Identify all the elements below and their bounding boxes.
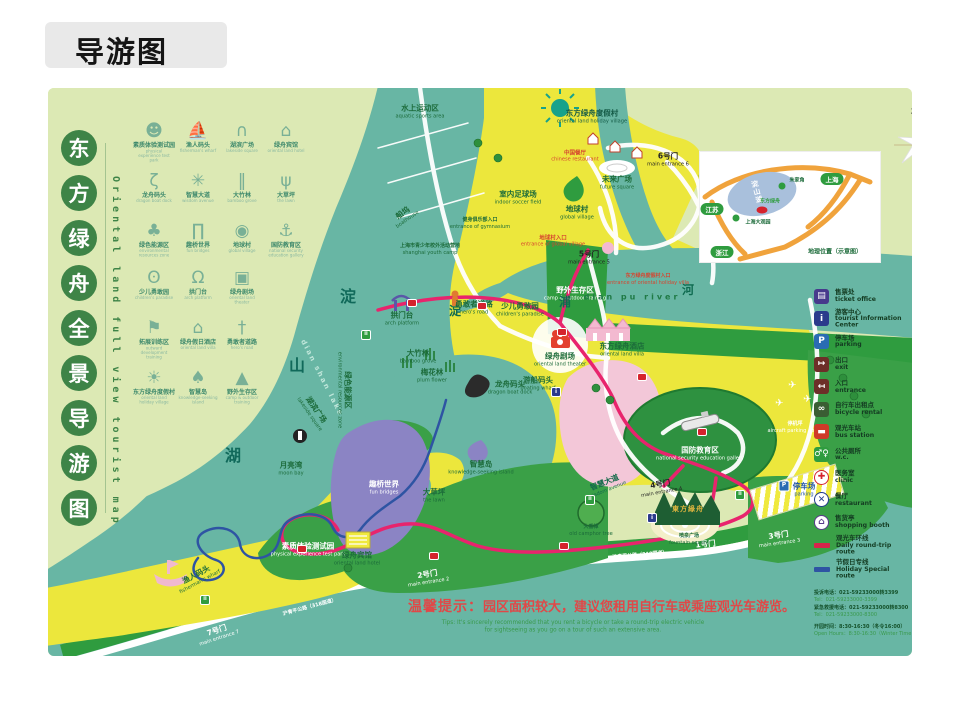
legend-item-text: 出口 exit [835,357,849,371]
attraction-item: ✳ 智慧大道 wisdom avenue [176,170,220,220]
attraction-item: ⌂ 绿舟假日酒店 oriental land villa [176,317,220,367]
title-char: 导 [61,400,97,436]
label-moonbay: 月亮湾moon bay [277,462,304,477]
attraction-icon: ⌂ [176,317,220,339]
inset-label-zhujiajiao: 朱家角 [789,177,804,184]
complaint-phone-en: Tel：021-59233000-3399 [814,597,910,605]
legend-item-en: restaurant [835,500,872,506]
inset-dot-oriental-land [757,207,768,214]
label-bamboo: 大竹林bamboo grove [398,350,438,365]
inset-dot-guanyuan [733,215,740,222]
attraction-item: ψ 大草坪 the lawn [264,170,308,220]
attraction-name: 拱门台 [176,289,220,296]
inset-region-shanghai: 上海 [821,173,844,185]
route-text: 节假日专线 Holiday Special route [836,559,910,579]
hotel-icon [346,532,370,548]
label-river-en: dian pu river [584,292,681,301]
label-defense: 国防教育区national security education gallery [652,447,748,462]
attraction-name: 大竹林 [220,192,264,199]
attraction-name: 国防教育区 [264,242,308,249]
attraction-item: ⛵ 渔人码头 fisherman's wharf [176,120,220,170]
divider [105,143,106,513]
legend-item-icon: ⌂ [814,515,829,530]
attraction-name: 趣桥世界 [176,242,220,249]
attraction-icon: ⚑ [132,317,176,339]
attraction-icon: ☻ [132,120,176,142]
wc-icon: ii [585,495,595,505]
attraction-name-en: hero's road [222,346,262,351]
attraction-icon: ☀ [132,367,176,389]
attraction-name-en: the lawn [266,199,306,204]
label-youth-camp: 上海市青少年校外活动营地shanghai youth camp [400,244,460,256]
attraction-name: 湖滨广场 [220,142,264,149]
legend-item-icon: ↦ [814,357,829,372]
title-char: 全 [61,310,97,346]
bus-stop-icon [559,542,569,550]
label-holiday-village: 东方绿舟度假村oriental land holiday village [554,110,630,125]
label-hv-entrance: 东方绿舟度假村入口entrance of oriental holiday vi… [603,274,692,286]
legend-item-en: bus station [835,432,874,438]
attraction-item: ▲ 野外生存区 camp & outdoor training [220,367,264,417]
label-future-square: 未来广场future square [598,176,635,191]
attraction-item: ⚑ 拓展训练区 outward development training [132,317,176,367]
legend-item-text: 售货亭 shopping booth [835,515,892,529]
label-gate-calligraphy: 東方綠舟 [672,505,704,513]
legend-item: ♂♀ 公共厕所 w.c. [814,443,910,466]
label-aquatic: 水上运动区aquatic sports area [393,105,446,120]
attraction-item: ☀ 东方绿舟度假村 oriental land holiday village [132,367,176,417]
attraction-name-en: oriental land holiday village [134,397,174,406]
legend-item: ∞ 自行车出租点 bicycle rental [814,398,910,421]
legend-item-icon: ▤ [814,289,829,304]
label-dragon: 龙舟码头dragon boat dock [486,381,534,396]
page-title-box: 导游图 [45,22,227,68]
map-vertical-title: 东方绿舟全景导游图 [61,130,97,535]
attraction-item: ◉ 地球村 global village [220,220,264,270]
legend-item-text: 公共厕所 w.c. [835,448,861,462]
attraction-icon: ♠ [176,367,220,389]
bus-stop-icon [429,552,439,560]
attraction-icon: Ω [176,267,220,289]
legend-item: ↦ 出口 exit [814,353,910,376]
legend-item-icon: ♂♀ [814,447,829,462]
attraction-icon: ⌂ [264,120,308,142]
compass-rose-icon [894,117,912,171]
attraction-icon: ✳ [176,170,220,192]
legend-item-en: ticket office [835,296,876,302]
label-camphor: 大香樟old camphor tree [567,525,614,537]
label-global-village: 地球村global village [559,206,596,221]
label-chinese-restaurant: 中国餐厅chinese restaurant [549,151,601,164]
attraction-name-en: outward development training [134,347,174,361]
route-text: 观光车环线 Daily round-trip route [836,535,910,555]
legend-item-en: shopping booth [835,522,889,528]
legend-item: ✕ 餐厅 restaurant [814,488,910,511]
legend-item: P 停车场 parking [814,330,910,353]
attraction-item: ♣ 绿色能源区 environmental resources zone [132,220,176,270]
attraction-item: ʘ 少儿勇敢园 children's paradise [132,267,176,317]
attraction-name-en: knowledge-seeking island [178,397,218,406]
title-char: 景 [61,355,97,391]
tips-zh: 温馨提示：园区面积较大，建议您租用自行车或乘座观光车游览。 [408,596,738,616]
legend-item: ↤ 入口 entrance [814,375,910,398]
tips: 温馨提示：园区面积较大，建议您租用自行车或乘座观光车游览。 Tips: It's… [408,596,738,635]
attraction-icon: ʘ [132,267,176,289]
bus-stop-icon [477,302,487,310]
legend-item: ⌂ 售货亭 shopping booth [814,511,910,534]
attraction-name: 绿舟宾馆 [264,142,308,149]
route-en: Holiday Special route [836,566,906,579]
attraction-icon: ⚓ [264,220,308,242]
legend-item: ▤ 售票处 ticket office [814,285,910,308]
emergency-phone-en: Tel：021-59233000-8300 [814,612,910,620]
attraction-name-en: children's paradise [134,296,174,301]
title-char: 图 [61,490,97,526]
attraction-name: 龙舟码头 [132,192,176,199]
attraction-grid-b: ʘ 少儿勇敢园 children's paradise Ω 拱门台 arch p… [132,267,264,417]
attraction-item: ∏ 趣桥世界 fun bridges [176,220,220,270]
attraction-name-en: oriental land hotel [266,149,306,154]
bus-stop-icon [637,373,647,381]
open-hours-en: Open Hours：8:30-16:30（Winter Time 16:00） [814,631,910,639]
svg-text:✈: ✈ [775,398,783,409]
title-char: 东 [61,130,97,166]
inset-label-guanyuan: 上海大观园 [745,219,770,226]
attraction-item: ⚓ 国防教育区 national security education gall… [264,220,308,270]
attraction-name: 勇敢者道路 [220,339,264,346]
attraction-name-en: dragon boat dock [134,199,174,204]
label-hero: 勇敢者道路hero's road [455,301,493,316]
label-soccer: 室内足球场indoor soccer field [493,191,544,206]
bus-stop-icon [557,328,567,336]
attraction-icon: ▣ [220,267,264,289]
route-swatch [814,567,830,572]
legend-item-en: exit [835,364,848,370]
attraction-name: 绿舟假日酒店 [176,339,220,346]
bus-stop-icon [297,545,307,553]
map-vertical-title-en: Oriental land full view tourist map [110,176,121,527]
attraction-icon: ψ [264,170,308,192]
wc-icon: ii [200,595,210,605]
legend-item-en: w.c. [835,455,860,461]
label-energy: 绿色能源区environmental resources zone [337,348,352,431]
label-theater: 绿舟剧场oriental land theater [532,353,589,368]
legend-item-text: 售票处 ticket office [835,289,878,303]
attraction-item: ♠ 智慧岛 knowledge-seeking island [176,367,220,417]
inset-dot-zhujiajiao [779,183,786,190]
legend-item-en: bicycle rental [835,409,882,415]
legend-item-text: 餐厅 restaurant [835,493,874,507]
attraction-name: 少儿勇敢园 [132,289,176,296]
legend-item-text: 入口 entrance [835,380,868,394]
label-lake-char: 淀 [340,288,356,306]
legend-item-text: 自行车出租点 bicycle rental [835,402,885,416]
attraction-name-en: oriental land villa [178,346,218,351]
legend-item-en: tourist Information Center [835,316,906,329]
attraction-name-en: physical experience test park [134,150,174,164]
legend-item: i 游客中心 tourist Information Center [814,308,910,331]
route-swatch [814,543,830,548]
compass: 北 N [891,104,912,175]
tips-en: Tips: It's sincerely recommended that yo… [416,619,730,634]
zone-defense [624,388,776,492]
legend-item-icon: ▬ [814,424,829,439]
title-char: 游 [61,445,97,481]
label-river-char: 浦 [559,296,571,310]
attraction-item: † 勇敢者道路 hero's road [220,317,264,367]
attraction-name-en: camp & outdoor training [222,397,262,406]
label-villa: 东方绿舟酒店oriental land villa [598,343,646,358]
attraction-icon: ∩ [220,120,264,142]
attraction-name-en: bamboo grove [222,199,262,204]
legend-item-text: 医务室 clinic [835,470,855,484]
attraction-name: 渔人码头 [176,142,220,149]
legend-item-icon: ∞ [814,402,829,417]
slide: 导游图 [0,0,960,720]
compass-label: 北 N [891,104,912,117]
label-gate6: 6号门main entrance 6 [645,153,690,168]
route-en: Daily round-trip route [836,542,906,555]
attraction-name-en: lakeside square [222,149,262,154]
attraction-item: ☻ 素质体验测试园 physical experience test park [132,120,176,170]
attraction-item: Ω 拱门台 arch platform [176,267,220,317]
legend-item-icon: P [814,334,829,349]
inset-label-oriental-land: 东方绿舟 [760,198,780,205]
legend-routes: 观光车环线 Daily round-trip route 节假日专线 Holid… [814,534,910,582]
attraction-name: 素质体验测试园 [132,142,176,149]
attraction-item: ∩ 湖滨广场 lakeside square [220,120,264,170]
legend-item-en: clinic [835,477,854,483]
label-island: 智慧岛knowledge-seeking island [445,461,516,476]
legend-item-icon: ↤ [814,379,829,394]
contact-info: 投诉电话：021-59233000转3399 Tel：021-59233000-… [814,590,910,639]
bus-stop-icon [697,428,707,436]
legend-item-icon: ✚ [814,470,829,485]
inset-region-jiangsu: 江苏 [701,203,724,215]
attraction-name-en: wisdom avenue [178,199,218,204]
wc-icon: ii [735,490,745,500]
map-legend: ▤ 售票处 ticket office i 游客中心 tourist Infor… [814,285,910,639]
label-lake-char: 湖 [225,447,241,465]
attraction-icon: ‖ [220,170,264,192]
attraction-name-en: environmental resources zone [134,250,174,259]
svg-text:✈: ✈ [788,380,796,391]
label-hotel: 绿舟宾馆oriental land hotel [332,552,382,567]
label-lawn: 大草坪the lawn [422,489,446,504]
legend-items: ▤ 售票处 ticket office i 游客中心 tourist Infor… [814,285,910,534]
attraction-name: 野外生存区 [220,389,264,396]
attraction-name: 智慧大道 [176,192,220,199]
attraction-icon: ♣ [132,220,176,242]
attraction-item: ζ 龙舟码头 dragon boat dock [132,170,176,220]
attraction-item: ‖ 大竹林 bamboo grove [220,170,264,220]
villa-icon [586,319,630,341]
attraction-name: 拓展训练区 [132,339,176,346]
label-bridges: 趣桥世界fun bridges [368,481,399,496]
title-char: 舟 [61,265,97,301]
label-parking-right: 停车场parking [793,483,816,498]
inset-region-zhejiang: 浙江 [711,246,734,258]
legend-item-text: 停车场 parking [835,335,863,349]
open-hours: 开园时间：8:30-16:30（冬令16:00） [814,624,910,632]
attraction-name-en: national security education gallery [266,250,306,259]
attraction-icon: † [220,317,264,339]
attraction-name: 智慧岛 [176,389,220,396]
attraction-icon: ▲ [220,367,264,389]
label-gym-entrance: 健身俱乐部入口entrance of gymnasium [447,218,513,230]
complaint-phone: 投诉电话：021-59233000转3399 [814,590,910,598]
emergency-phone: 紧急救援电话：021-59233000转8300 [814,605,910,613]
label-lake-char: 山 [289,357,305,375]
legend-item-en: parking [835,342,862,348]
attraction-name-en: global village [222,249,262,254]
attraction-name-en: oriental land theater [222,297,262,306]
attraction-name: 绿舟剧场 [220,289,264,296]
inset-caption: 地理位置（示意图） [808,247,862,256]
attraction-name-en: fisherman's wharf [178,149,218,154]
attraction-name-en: arch platform [178,296,218,301]
legend-item-icon: ✕ [814,492,829,507]
attraction-icon: ∏ [176,220,220,242]
label-fountain-square: 喷泉广场fountain square [667,534,710,546]
tourist-map: ✈ ✈ ✈ 东方绿舟全景导游图 Oriental land full view … [48,88,912,656]
attraction-name-en: fun bridges [178,249,218,254]
label-plum: 梅花林plum flower [416,369,449,384]
title-char: 绿 [61,220,97,256]
label-children: 少儿勇敢园children's paradise [494,303,546,318]
attraction-name: 地球村 [220,242,264,249]
info-icon: i [551,387,561,397]
legend-item: ▬ 观光车站 bus station [814,421,910,444]
legend-item-text: 观光车站 bus station [835,425,876,439]
page-title: 导游图 [45,22,227,71]
lighthouse-icon [293,429,307,443]
svg-text:✈: ✈ [803,394,811,405]
info-icon: i [647,513,657,523]
attraction-icon: ζ [132,170,176,192]
attraction-icon: ⛵ [176,120,220,142]
attraction-name: 东方绿舟度假村 [132,389,176,396]
inset-location-map: 淀山湖 上海 江苏 浙江 朱家角 上海大观园 东方绿舟 地理位置（示意图） [700,152,880,262]
legend-route: 观光车环线 Daily round-trip route [814,534,910,558]
legend-item-icon: i [814,311,829,326]
attraction-icon: ◉ [220,220,264,242]
legend-item: ✚ 医务室 clinic [814,466,910,489]
label-gate5: 5号门main entrance 5 [566,251,611,266]
label-arch: 拱门台arch platform [383,312,420,327]
legend-route: 节假日专线 Holiday Special route [814,558,910,582]
attraction-grid-a: ☻ 素质体验测试园 physical experience test park … [132,120,308,270]
wc-icon: ii [361,330,371,340]
attraction-item: ⌂ 绿舟宾馆 oriental land hotel [264,120,308,170]
label-gv-entrance: 地球村入口entrance of global village [518,236,588,249]
bus-stop-icon [407,299,417,307]
attraction-item: ▣ 绿舟剧场 oriental land theater [220,267,264,317]
attraction-name: 绿色能源区 [132,242,176,249]
parking-icon: P [779,481,790,492]
title-char: 方 [61,175,97,211]
legend-item-text: 游客中心 tourist Information Center [835,309,910,329]
attraction-name: 大草坪 [264,192,308,199]
legend-item-en: entrance [835,387,866,393]
label-river-char: 河 [682,284,694,298]
